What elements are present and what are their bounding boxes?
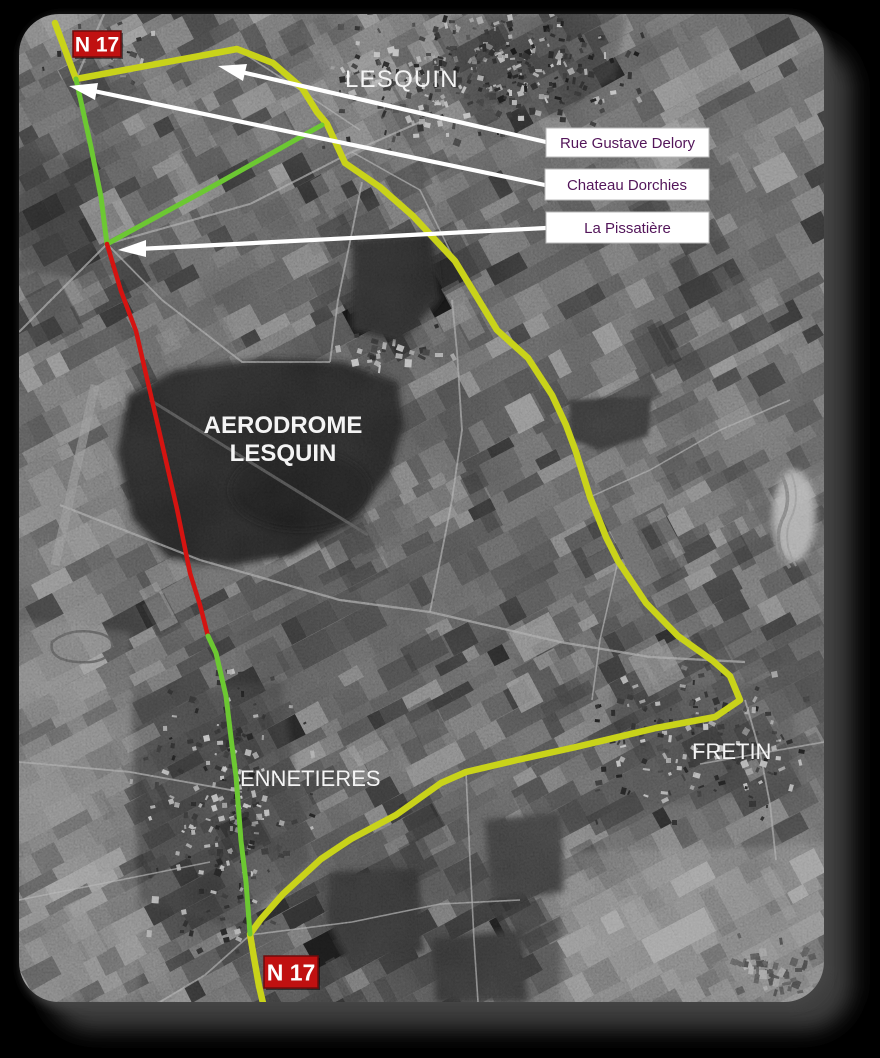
svg-text:N 17: N 17 [267,959,316,985]
svg-text:LESQUIN: LESQUIN [345,66,459,93]
svg-text:Chateau Dorchies: Chateau Dorchies [567,177,687,194]
svg-text:FRETIN: FRETIN [692,739,771,764]
svg-text:N 17: N 17 [75,34,119,57]
svg-text:Rue Gustave Delory: Rue Gustave Delory [560,135,696,152]
svg-text:LESQUIN: LESQUIN [230,440,337,467]
svg-text:La Pissatière: La Pissatière [584,220,671,237]
svg-text:AERODROME: AERODROME [204,412,363,439]
svg-text:ENNETIERES: ENNETIERES [240,766,381,791]
